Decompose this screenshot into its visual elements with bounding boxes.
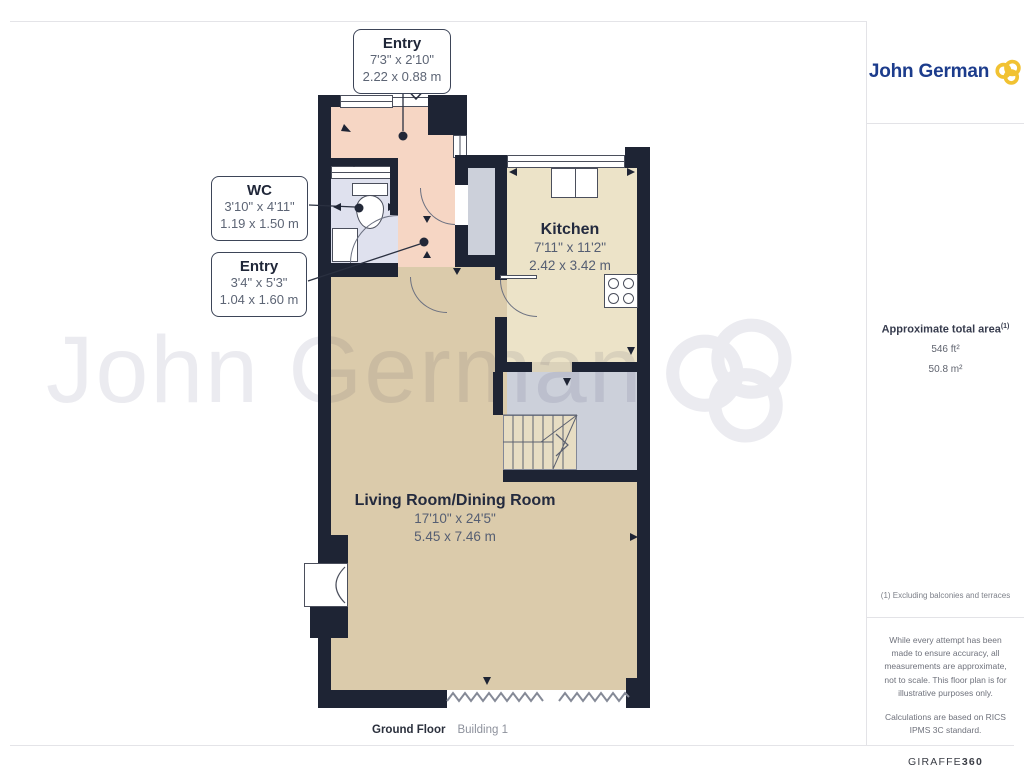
watermark-knot-icon xyxy=(642,312,820,452)
total-area-text: Approximate total area xyxy=(882,323,1001,335)
callout-dim-imperial: 7'3" x 2'10" xyxy=(360,52,444,69)
area-footnote: (1) Excluding balconies and terraces xyxy=(867,574,1024,618)
watermark-brand-text: John German xyxy=(46,316,644,425)
wall xyxy=(318,95,331,535)
wall xyxy=(318,95,340,107)
wall xyxy=(493,372,503,415)
wall xyxy=(455,155,507,168)
kitchen-sink xyxy=(551,168,598,198)
fireplace-niche xyxy=(304,563,348,607)
room-label-kitchen: Kitchen 7'11" x 11'2" 2.42 x 3.42 m xyxy=(495,221,645,274)
wall xyxy=(428,95,467,135)
total-area-label: Approximate total area(1) xyxy=(882,323,1010,336)
door-leaf-kitchen xyxy=(500,275,537,279)
area-imperial: 546 ft² xyxy=(931,344,959,355)
footnote-marker: (1) xyxy=(1001,323,1010,330)
disclaimer-block: While every attempt has been made to ens… xyxy=(867,618,1024,768)
staircase xyxy=(503,415,577,470)
total-area-block: Approximate total area(1) 546 ft² 50.8 m… xyxy=(867,124,1024,574)
floor-caption: Ground FloorBuilding 1 xyxy=(372,724,508,736)
callout-dim-metric: 1.19 x 1.50 m xyxy=(218,216,301,233)
area-metric: 50.8 m² xyxy=(929,364,963,375)
callout-dim-metric: 2.22 x 0.88 m xyxy=(360,69,444,86)
front-door-opening xyxy=(393,97,428,107)
wall xyxy=(318,690,447,708)
room-name: Living Room/Dining Room xyxy=(350,492,560,510)
wall xyxy=(390,166,398,215)
provider-suffix: 360 xyxy=(962,756,983,768)
wall xyxy=(495,362,532,372)
hob xyxy=(604,274,638,308)
callout-name: Entry xyxy=(218,258,300,275)
wall xyxy=(318,263,398,277)
window xyxy=(507,155,625,168)
building-label: Building 1 xyxy=(457,724,508,736)
wall xyxy=(503,470,637,482)
threshold-hall-living xyxy=(398,267,507,277)
provider-name: GIRAFFE xyxy=(908,756,962,768)
callout-dim-metric: 1.04 x 1.60 m xyxy=(218,292,300,309)
room-fill-cupboard xyxy=(468,168,495,255)
callout-entry-top: Entry 7'3" x 2'10" 2.22 x 0.88 m xyxy=(353,29,451,94)
room-name: Kitchen xyxy=(495,221,645,239)
disclaimer-text: While every attempt has been made to ens… xyxy=(879,634,1012,700)
wall xyxy=(572,362,637,372)
room-dim-imperial: 17'10" x 24'5" xyxy=(350,510,560,528)
brand-logo: John German xyxy=(867,21,1024,124)
callout-dim-imperial: 3'10" x 4'11" xyxy=(218,199,301,216)
window xyxy=(331,166,398,179)
floorplan-page: John German xyxy=(0,0,1024,768)
window xyxy=(340,95,393,108)
brand-knot-icon xyxy=(995,59,1022,86)
room-dim-metric: 2.42 x 3.42 m xyxy=(495,257,645,275)
info-sidebar: John German Approximate total area(1) 54… xyxy=(866,21,1024,745)
room-label-living: Living Room/Dining Room 17'10" x 24'5" 5… xyxy=(350,492,560,545)
bottom-divider xyxy=(10,745,1014,746)
room-dim-imperial: 7'11" x 11'2" xyxy=(495,239,645,257)
callout-dim-imperial: 3'4" x 5'3" xyxy=(218,275,300,292)
top-divider xyxy=(10,21,1014,22)
standard-text: Calculations are based on RICS IPMS 3C s… xyxy=(879,711,1012,737)
provider-logo: GIRAFFE360 xyxy=(879,754,1012,768)
callout-name: Entry xyxy=(360,35,444,52)
callout-wc: WC 3'10" x 4'11" 1.19 x 1.50 m xyxy=(211,176,308,241)
wall xyxy=(626,678,650,708)
floor-label: Ground Floor xyxy=(372,724,445,736)
wall xyxy=(331,158,398,166)
room-dim-metric: 5.45 x 7.46 m xyxy=(350,528,560,546)
callout-name: WC xyxy=(218,182,301,199)
callout-entry-side: Entry 3'4" x 5'3" 1.04 x 1.60 m xyxy=(211,252,307,317)
wall xyxy=(318,535,348,563)
wall xyxy=(310,607,348,638)
brand-name: John German xyxy=(869,61,989,83)
